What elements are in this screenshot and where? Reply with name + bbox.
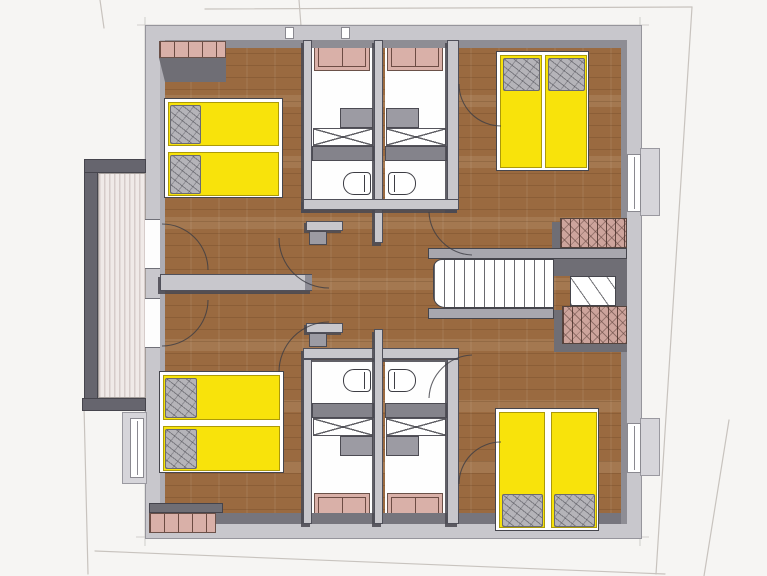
toilet <box>343 172 371 195</box>
pillow <box>502 494 543 527</box>
balcony-door-bottom <box>145 298 160 348</box>
toilet <box>388 369 416 392</box>
bathroom-bottom-right <box>385 360 447 524</box>
wall-left-rooms-divider <box>160 274 312 291</box>
bed-bottom-left <box>159 371 284 473</box>
outer-wall-top-face <box>160 40 627 48</box>
wardrobe-top-left-side <box>159 58 226 82</box>
shower <box>313 418 373 436</box>
floor-plan-canvas <box>0 0 767 576</box>
sideboard-top-face <box>149 503 223 513</box>
floor-plan <box>145 25 642 539</box>
bed-top-left <box>164 98 283 198</box>
mattress <box>163 375 280 420</box>
parapet-top-side <box>552 222 560 248</box>
mattress <box>168 152 279 196</box>
pillow <box>165 378 197 418</box>
door-stub-bottom <box>306 323 343 333</box>
wall-bath-bottom-center <box>374 329 383 524</box>
bathroom-top-left <box>312 40 374 199</box>
wall-bath-bottom-right-side <box>447 359 459 524</box>
pillow <box>170 105 201 144</box>
balcony-railing-top <box>84 159 146 173</box>
parapet-bottom-side <box>554 310 562 344</box>
toilet <box>388 172 416 195</box>
washbasin-counter <box>386 108 419 128</box>
wall-bath-top-bottom <box>303 199 459 210</box>
partition-wall <box>312 146 374 161</box>
window-top-1 <box>285 27 294 39</box>
mattress <box>545 55 587 168</box>
stair-winder-treads <box>570 276 616 306</box>
washbasin-counter <box>340 436 373 456</box>
door-stub-top <box>306 221 343 231</box>
window-right-2 <box>627 423 641 473</box>
wall-divider-end-cap <box>305 275 312 290</box>
stair-parapet-top <box>560 218 627 248</box>
bathroom-bottom-left <box>312 360 374 524</box>
dormer-right-2 <box>640 418 660 476</box>
mattress <box>163 426 280 471</box>
stair-stringer-upper <box>428 248 627 259</box>
washbasin-counter <box>340 108 373 128</box>
sideboard-bottom-left <box>149 513 216 533</box>
pillow <box>165 429 197 469</box>
window-right-1 <box>627 154 641 212</box>
stair-winder-edge <box>616 276 627 306</box>
stair-parapet-bottom <box>562 306 627 344</box>
pillow <box>548 58 585 91</box>
pillow <box>554 494 595 527</box>
parapet-bottom-face <box>554 344 627 352</box>
window-top-2 <box>341 27 350 39</box>
partition-wall <box>312 403 374 418</box>
shower <box>313 128 373 146</box>
stair-treads <box>433 259 554 308</box>
wall-bath-top-center <box>374 40 383 243</box>
dormer-right-1 <box>640 148 660 216</box>
shower <box>386 128 446 146</box>
washbasin-counter <box>386 436 419 456</box>
stair-landing-face <box>554 259 627 276</box>
window-left <box>130 418 144 478</box>
toilet <box>343 369 371 392</box>
partition-wall <box>385 403 447 418</box>
partition-wall <box>385 146 447 161</box>
balcony-railing-bottom <box>82 398 146 411</box>
bathroom-top-right <box>385 40 447 199</box>
mattress <box>499 412 545 528</box>
stub-box-top <box>309 231 327 245</box>
mattress <box>168 102 279 146</box>
mattress <box>551 412 597 528</box>
stair-stringer-lower <box>428 308 554 319</box>
pillow <box>503 58 540 91</box>
stub-box-bottom <box>309 333 327 347</box>
wardrobe-top-left <box>159 41 226 58</box>
wall-bath-bottom-left-side <box>303 359 312 524</box>
bed-bottom-right <box>495 408 599 531</box>
balcony-deck <box>98 173 146 398</box>
balcony-railing-left <box>84 159 98 409</box>
wall-bath-top-left-side <box>303 40 312 210</box>
balcony-door-top <box>145 219 160 269</box>
shower <box>386 418 446 436</box>
mattress <box>500 55 542 168</box>
bed-top-right <box>496 51 589 171</box>
wall-bath-top-right-side <box>447 40 459 210</box>
pillow <box>170 155 201 194</box>
